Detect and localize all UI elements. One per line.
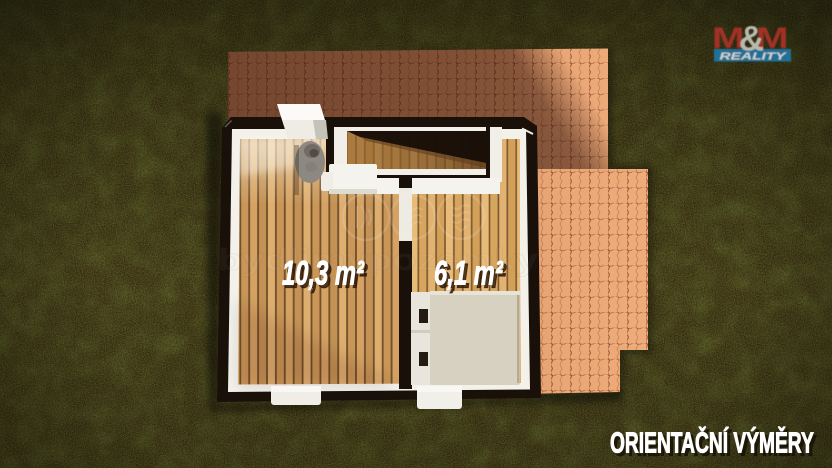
- svg-text:ORIENTAČNÍ VÝMĚRY: ORIENTAČNÍ VÝMĚRY: [610, 425, 814, 459]
- svg-text:10,3 m²: 10,3 m²: [282, 254, 365, 292]
- svg-text:&: &: [739, 20, 764, 59]
- svg-text:6,1 m²: 6,1 m²: [434, 254, 504, 292]
